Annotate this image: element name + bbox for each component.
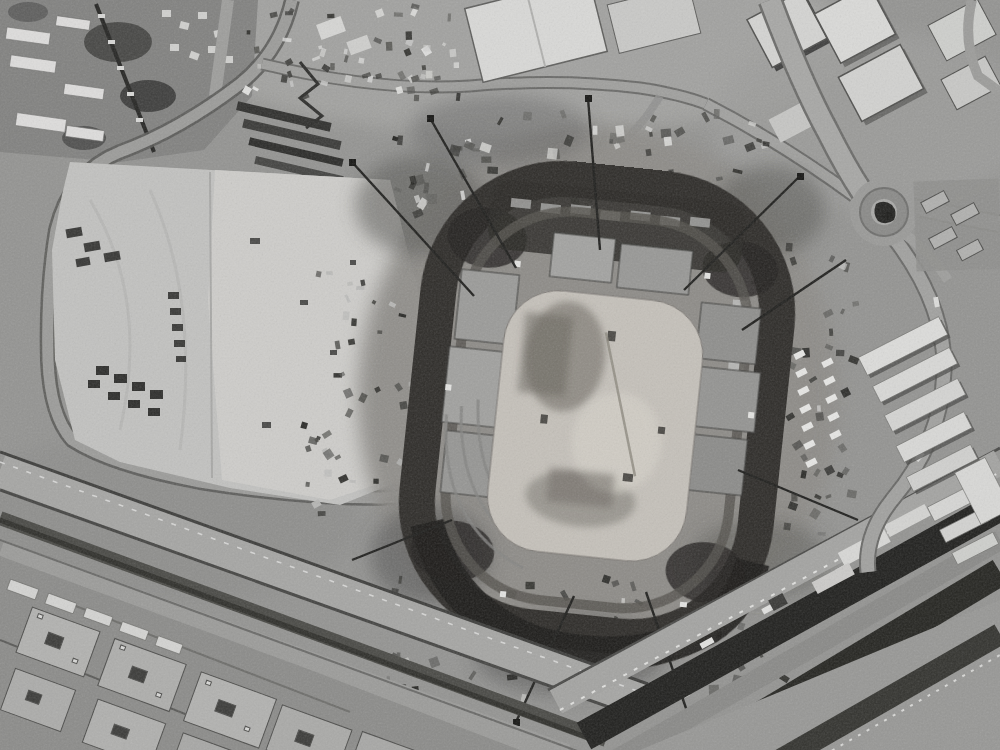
satellite-image-viewport: Grayscale overhead satellite photograph … <box>0 0 1000 750</box>
satellite-photo: Grayscale overhead satellite photograph … <box>0 0 1000 750</box>
film-grain <box>0 0 1000 750</box>
